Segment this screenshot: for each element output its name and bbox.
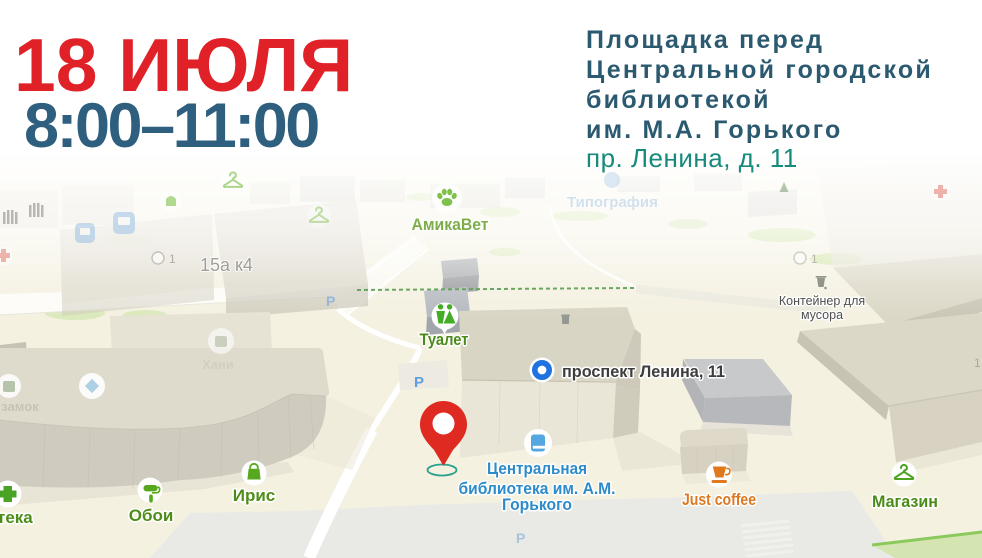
svg-text:Обои: Обои: [129, 506, 174, 525]
svg-text:Контейнер для: Контейнер для: [779, 294, 865, 308]
svg-text:P: P: [414, 374, 424, 391]
svg-text:Хани: Хани: [202, 357, 234, 372]
svg-text:Just coffee: Just coffee: [682, 490, 756, 509]
svg-text:Магазин: Магазин: [872, 492, 938, 511]
svg-text:Горького: Горького: [502, 495, 572, 514]
svg-text:Центральная: Центральная: [487, 459, 587, 478]
svg-text:проспект Ленина, 11: проспект Ленина, 11: [562, 362, 725, 381]
svg-text:P: P: [326, 293, 335, 309]
svg-text:1: 1: [811, 252, 818, 266]
svg-text:15а к4: 15а к4: [200, 255, 253, 275]
svg-text:Ирис: Ирис: [233, 486, 276, 505]
svg-text:замок: замок: [1, 399, 39, 414]
svg-text:тека: тека: [0, 508, 33, 527]
svg-text:Типография: Типография: [567, 194, 658, 211]
svg-text:P: P: [516, 530, 525, 546]
svg-text:АмикаВет: АмикаВет: [412, 215, 489, 234]
svg-text:1: 1: [169, 252, 176, 266]
svg-text:мусора: мусора: [801, 308, 843, 322]
svg-text:1: 1: [974, 356, 981, 370]
